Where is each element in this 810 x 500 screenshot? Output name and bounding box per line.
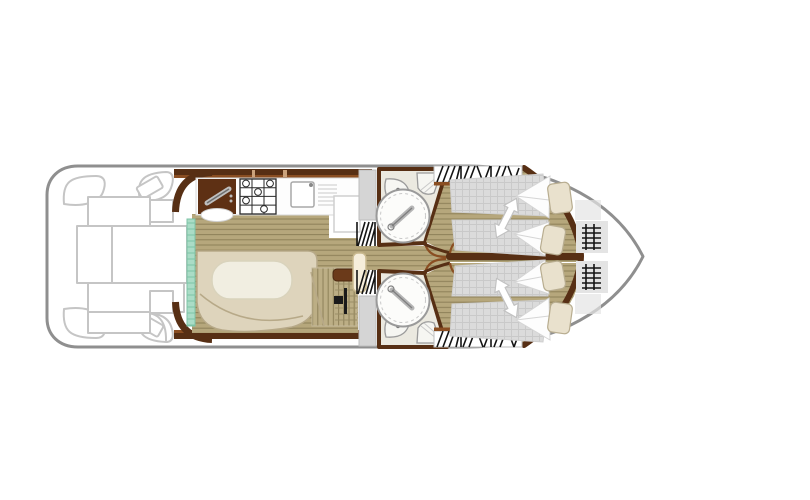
helm-seat: [201, 209, 233, 222]
floor-plan-canvas: [0, 0, 810, 500]
stern-bench-bottom-right-small: [150, 291, 173, 313]
sliding-door-icon: [187, 219, 195, 326]
wall-window-2: [283, 170, 287, 177]
stern-bench-bottom-small: [88, 312, 150, 333]
stern-bench-top: [88, 197, 150, 226]
bed-top-outer-pillow: [547, 182, 573, 215]
galley-cabinet-dot-1: [230, 195, 233, 198]
steps-handrail: [344, 288, 347, 314]
bed-top-inner-pillow: [540, 224, 567, 255]
bow-locker-bottom: [575, 294, 601, 314]
boat-floor-plan: [0, 0, 810, 500]
door-slab-bottom: [359, 296, 376, 346]
shower-icon-bottom: [377, 274, 430, 327]
shower-icon-top: [377, 190, 430, 243]
door-slab-top: [359, 170, 376, 220]
stove-icon: [240, 179, 276, 214]
stern-bench-top-small: [150, 200, 173, 222]
steps-fixture: [334, 296, 343, 304]
bed-bottom-outer-pillow: [547, 302, 573, 335]
fridge-icon: [334, 196, 360, 232]
galley-cabinet-dot-2: [230, 200, 233, 203]
wall-window-1: [252, 170, 255, 177]
salon-table: [212, 261, 292, 299]
bed-bottom-inner-pillow: [540, 260, 567, 291]
stern-bench-center: [77, 226, 187, 283]
bow-locker-top: [575, 200, 601, 220]
